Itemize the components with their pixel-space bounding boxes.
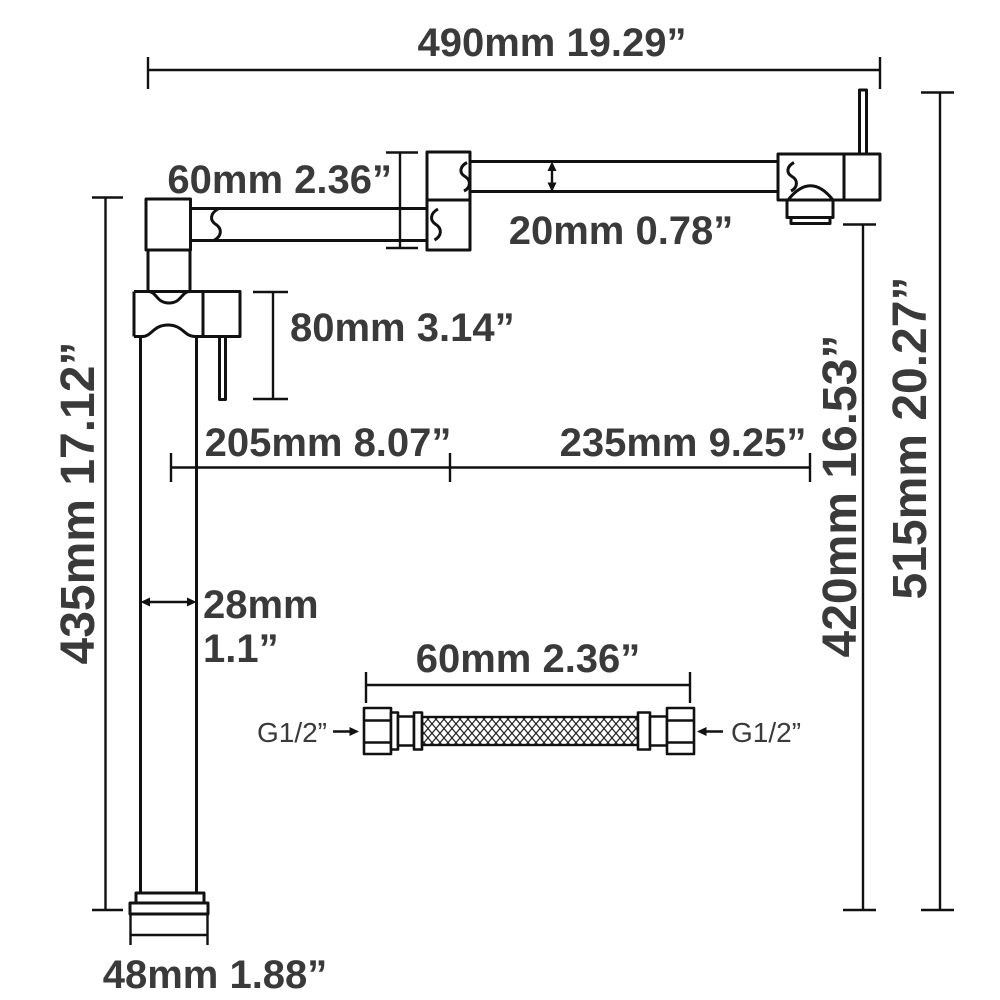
- tube-joint-wave-head: [788, 163, 796, 192]
- arrow-left-icon: [697, 727, 707, 736]
- dim-reach-right-label: 235mm 9.25”: [560, 421, 807, 465]
- dim-base-width-line: [131, 914, 208, 945]
- base-flange-step2: [130, 903, 208, 914]
- dim-handle-height-line: [253, 292, 288, 399]
- dim-hose-length-label: 60mm 2.36”: [416, 637, 641, 681]
- hose-nut-right: [667, 708, 694, 754]
- dim-pipe-width-in-label: 1.1”: [203, 627, 279, 671]
- dim-handle-height-label: 80mm 3.14”: [290, 306, 515, 350]
- lower-arm-tube: [190, 209, 427, 241]
- tube-joint-wave-left: [212, 209, 221, 240]
- dim-spout-height-label: 420mm 16.53”: [814, 335, 867, 658]
- dim-pipe-width-mm-label: 28mm: [203, 583, 319, 627]
- hose-thread-right-label: G1/2”: [731, 717, 801, 748]
- diagram-svg: 490mm 19.29” 60mm 2.36” 20mm 0.78” 80mm …: [0, 0, 1000, 1000]
- faucet-body-drawing: [130, 90, 880, 914]
- tube-joint-wave-mid-upper: [461, 163, 469, 192]
- hose-braided-body: [422, 717, 638, 745]
- dim-base-width-label: 48mm 1.88”: [103, 953, 328, 997]
- spout-handle-stick: [860, 90, 867, 154]
- dim-tube-diameter-label: 20mm 0.78”: [509, 209, 734, 253]
- dim-column-height-label: 435mm 17.12”: [52, 342, 105, 665]
- arrow-right-icon: [350, 727, 360, 736]
- dim-joint-height-label: 60mm 2.36”: [167, 158, 392, 202]
- valve-top-edge: [134, 292, 203, 304]
- hose-detail-drawing: 60mm 2.36” G1/2” G1/2”: [257, 637, 801, 754]
- dim-total-height-label: 515mm 20.27”: [884, 277, 937, 600]
- hose-nut-left: [364, 708, 391, 754]
- tube-joint-wave-mid-lower: [432, 209, 441, 240]
- middle-joint-lower-block: [427, 200, 470, 250]
- spout-outlet-body: [787, 200, 833, 218]
- left-elbow-upper-block: [146, 199, 191, 250]
- dim-reach-left-label: 205mm 8.07”: [205, 421, 452, 465]
- dim-overall-width-label: 490mm 19.29”: [417, 21, 686, 65]
- valve-bottom-edge: [134, 325, 203, 337]
- hose-cylinder-left: [398, 717, 414, 746]
- spout-outlet-aerator: [791, 218, 830, 224]
- hose-cylinder-right: [650, 717, 667, 746]
- riser-column: [141, 337, 197, 894]
- hose-ring-right: [638, 713, 650, 750]
- valve-right-block: [203, 292, 240, 337]
- dimension-annotations: 490mm 19.29” 60mm 2.36” 20mm 0.78” 80mm …: [52, 21, 954, 997]
- valve-handle-rod: [220, 337, 226, 400]
- faucet-dimension-diagram: 490mm 19.29” 60mm 2.36” 20mm 0.78” 80mm …: [0, 0, 1000, 1000]
- left-elbow-lower-block: [148, 250, 190, 292]
- hose-thread-left-label: G1/2”: [257, 717, 327, 748]
- upper-arm-tube: [470, 162, 778, 192]
- hose-ring-left-2: [414, 713, 422, 750]
